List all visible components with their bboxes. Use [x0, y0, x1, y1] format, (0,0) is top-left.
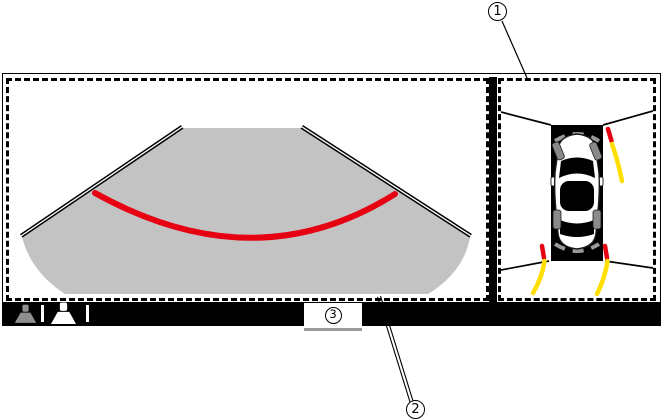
callout-1-label: 1 [493, 5, 501, 18]
birds-eye-view [501, 81, 653, 298]
camera-view-area [22, 128, 470, 294]
bar-separator [41, 305, 44, 322]
camera-mode-bar: 3 [3, 302, 660, 326]
view-switch-button[interactable]: 3 [304, 303, 362, 331]
predicted-course-line-rear-left [533, 246, 545, 293]
callout-1: 1 [488, 2, 507, 21]
view-seam-bottom-right [605, 261, 653, 268]
vehicle-roof [560, 181, 594, 211]
view-seam-top-right [603, 111, 653, 125]
rear-camera-view [9, 81, 486, 298]
rear-view-panel [6, 78, 489, 301]
vehicle-rear-wheel-right [593, 210, 601, 229]
view-seam-top-left [501, 112, 551, 125]
monitor-screen: 3 [2, 73, 661, 326]
bar-separator [86, 305, 89, 322]
panel-divider [489, 77, 497, 302]
parking-camera-diagram: 1 [0, 0, 663, 420]
rear-camera-icon[interactable] [13, 304, 38, 324]
callout-2: 2 [406, 400, 425, 419]
wide-view-camera-icon[interactable] [47, 302, 80, 325]
predicted-course-line-front-right [608, 129, 622, 181]
callout-1-leader [502, 21, 527, 78]
vehicle-top-view [551, 134, 603, 249]
birds-eye-panel [498, 78, 656, 301]
callout-3-label: 3 [325, 307, 342, 324]
vehicle-rear-wheel-left [553, 210, 561, 229]
callout-2-label: 2 [411, 403, 419, 416]
